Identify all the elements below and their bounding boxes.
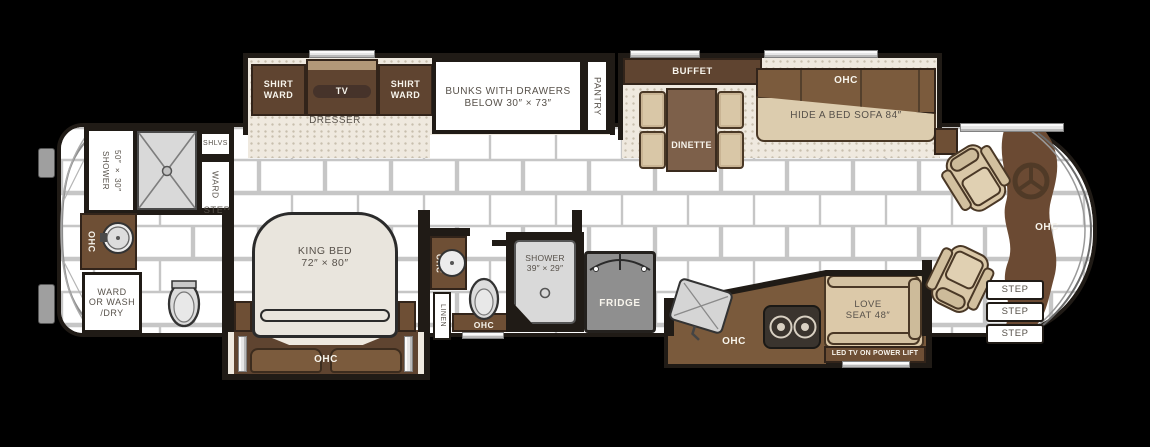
cockpit-cabinet bbox=[934, 128, 958, 155]
wall bbox=[418, 228, 470, 236]
dinette-bench bbox=[639, 91, 666, 129]
dresser-label: DRESSER bbox=[290, 114, 380, 128]
pantry-label: PANTRY bbox=[592, 77, 603, 116]
dinette-bench bbox=[717, 131, 744, 169]
slide-rail bbox=[404, 336, 413, 372]
slide-rail bbox=[309, 50, 375, 58]
shirt-ward-right: SHIRT WARD bbox=[378, 64, 433, 116]
toilet-ohc-label: OHC bbox=[454, 318, 514, 332]
nightstand bbox=[398, 301, 416, 332]
love-seat-back bbox=[908, 278, 922, 340]
rear-shower-word: SHOWER bbox=[99, 150, 111, 191]
bunks-label-1: BUNKS WITH DRAWERS bbox=[445, 86, 570, 98]
slide-rail bbox=[238, 336, 247, 372]
mid-shower-label-1: SHOWER bbox=[525, 253, 564, 263]
rear-shower-label-box: 50″ × 30″ SHOWER bbox=[89, 131, 133, 210]
rear-vanity-ohc-label: OHC bbox=[86, 231, 97, 253]
slide-rail bbox=[960, 123, 1064, 132]
tv-cabinet-top bbox=[308, 61, 376, 70]
rear-shower-size: 50″ × 30″ bbox=[111, 150, 123, 191]
mid-shower-label-2: 39″ × 29″ bbox=[527, 263, 563, 273]
rv-floorplan: SHIRT WARD TV SHIRT WARD DRESSER BUNKS W… bbox=[0, 0, 1150, 447]
rear-vanity: OHC bbox=[80, 213, 137, 270]
sofa-ohc-label: OHC bbox=[801, 74, 891, 88]
mid-bath-ohc-label: OHC bbox=[434, 254, 443, 273]
entry-step: STEP bbox=[986, 324, 1044, 344]
dinette-label: DINETTE bbox=[668, 130, 715, 160]
bed-ohc-label: OHC bbox=[300, 352, 352, 367]
fridge-label: FRIDGE bbox=[587, 296, 653, 312]
hide-a-bed-sofa: OHC HIDE A BED SOFA 84″ bbox=[756, 68, 936, 142]
cooktop bbox=[763, 305, 821, 349]
dinette-bench bbox=[717, 91, 744, 129]
dash-ohc-label: OHC bbox=[1026, 221, 1068, 235]
king-bed-label-2: 72″ × 80″ bbox=[301, 257, 348, 269]
mid-shower-pan: SHOWER 39″ × 29″ bbox=[514, 240, 576, 324]
buffet: BUFFET bbox=[623, 58, 762, 85]
bunks: BUNKS WITH DRAWERS BELOW 30″ × 73″ bbox=[432, 58, 584, 134]
slide-rail bbox=[630, 50, 700, 58]
love-seat-label-1: LOVE bbox=[854, 299, 881, 310]
love-seat-arm bbox=[827, 275, 920, 288]
tv-label: TV bbox=[308, 83, 376, 99]
nightstand bbox=[234, 301, 252, 332]
king-bed-label-1: KING BED bbox=[298, 245, 352, 257]
shirt-ward-left: SHIRT WARD bbox=[251, 64, 306, 116]
wall bbox=[222, 210, 234, 332]
slide-rail bbox=[764, 50, 878, 58]
king-bed: KING BED 72″ × 80″ bbox=[252, 212, 398, 338]
linen-closet: LINEN bbox=[433, 292, 451, 340]
dinette-bench bbox=[639, 131, 666, 169]
love-seat: LOVE SEAT 48″ bbox=[824, 272, 924, 348]
hide-a-bed-label: HIDE A BED SOFA 84″ bbox=[760, 108, 932, 124]
fridge: FRIDGE bbox=[584, 251, 656, 333]
rear-shower-pan bbox=[137, 131, 197, 210]
pantry: PANTRY bbox=[584, 58, 610, 134]
linen-label: LINEN bbox=[438, 304, 446, 327]
wall bbox=[664, 298, 674, 336]
entry-step: STEP bbox=[986, 280, 1044, 300]
ward-or-washdry: WARD OR WASH /DRY bbox=[82, 272, 142, 333]
bed-fold-line bbox=[260, 309, 390, 322]
love-seat-label-2: SEAT 48″ bbox=[846, 310, 891, 321]
shelves: SHLVS bbox=[199, 131, 232, 157]
mid-bath-vanity: OHC bbox=[430, 236, 467, 290]
love-seat-arm bbox=[827, 332, 920, 345]
kitchen-ohc-label: OHC bbox=[706, 334, 762, 349]
dinette-table: DINETTE bbox=[666, 88, 717, 172]
slide-rail bbox=[842, 361, 910, 368]
entry-step: STEP bbox=[986, 302, 1044, 322]
tv-cabinet: TV bbox=[306, 59, 378, 116]
bunks-label-2: BELOW 30″ × 73″ bbox=[464, 98, 551, 110]
ward-label: WARD bbox=[210, 171, 220, 199]
slide-rail bbox=[462, 332, 504, 339]
